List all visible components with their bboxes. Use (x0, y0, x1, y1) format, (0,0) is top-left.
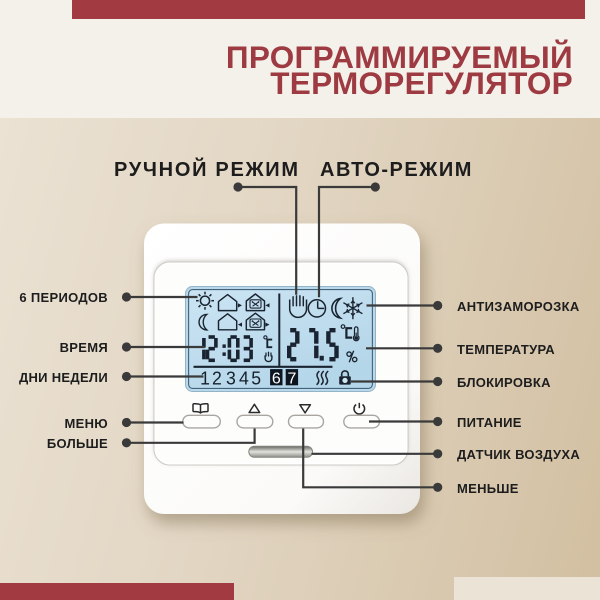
svg-text:5: 5 (251, 368, 261, 389)
svg-text:4: 4 (239, 368, 249, 389)
svg-text:2: 2 (212, 368, 222, 389)
svg-text:3: 3 (226, 368, 236, 389)
svg-text:6: 6 (272, 370, 281, 387)
svg-text:7: 7 (287, 370, 296, 387)
svg-text:1: 1 (200, 368, 210, 389)
